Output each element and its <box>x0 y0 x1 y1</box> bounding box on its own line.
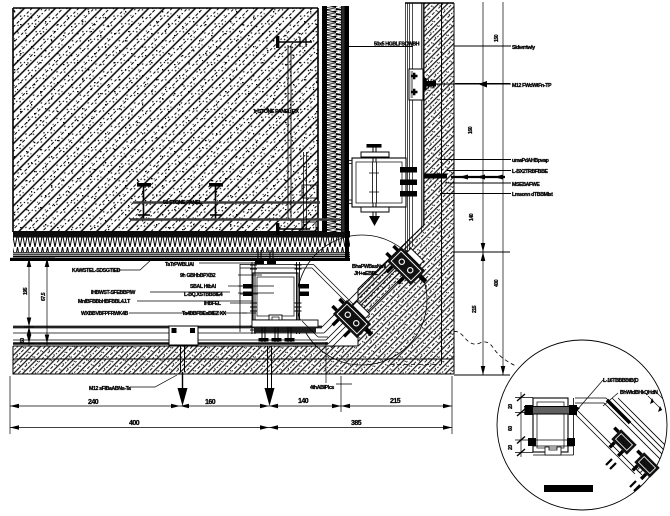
svg-text:215: 215 <box>472 305 478 313</box>
svg-text:50 STONE PANEL: 50 STONE PANEL <box>163 200 203 206</box>
svg-text:4thABlPlcs: 4thABlPlcs <box>310 385 334 391</box>
svg-text:195: 195 <box>23 287 29 295</box>
svg-text:400: 400 <box>494 279 500 287</box>
svg-text:9h GBHbBPXB2: 9h GBHbBPXB2 <box>180 273 216 279</box>
svg-text:M12 sFlBaABNs-Ta: M12 sFlBaABNs-Ta <box>89 386 131 392</box>
svg-text:t=STONE PANEL FIX: t=STONE PANEL FIX <box>254 109 300 115</box>
svg-text:KAWSTEL-SDSGTIED: KAWSTEL-SDSGTIED <box>72 268 121 274</box>
svg-text:Ta4BBFBEsBIEZ XX: Ta4BBFBEsBIEZ XX <box>182 311 227 317</box>
svg-text:400: 400 <box>129 420 140 427</box>
svg-text:67.5: 67.5 <box>41 292 47 301</box>
svg-text:385: 385 <box>351 420 362 427</box>
svg-text:Lmsonn dTBBMlst: Lmsonn dTBBMlst <box>512 192 553 198</box>
svg-text:60: 60 <box>508 426 514 431</box>
svg-text:IHBFEL: IHBFEL <box>204 301 222 307</box>
svg-text:240: 240 <box>88 399 99 406</box>
svg-text:M12 FWdWtFn-TP: M12 FWdWtFn-TP <box>512 83 552 89</box>
svg-text:L-BQ.XSTBBBIE4: L-BQ.XSTBBBIE4 <box>184 292 223 298</box>
svg-text:140: 140 <box>469 213 475 221</box>
svg-text:Sldwrrtwly: Sldwrrtwly <box>512 45 535 51</box>
svg-text:50x5 HGBLFSCWBH: 50x5 HGBLFSCWBH <box>374 42 420 48</box>
svg-text:L-16TBBBBtB(D: L-16TBBBBtB(D <box>603 378 639 384</box>
svg-text:MSEBAFWE: MSEBAFWE <box>512 182 540 188</box>
svg-text:215: 215 <box>390 398 401 405</box>
svg-text:TaTrPWBLlAl: TaTrPWBLlAl <box>165 262 195 268</box>
svg-text:50: 50 <box>20 338 26 343</box>
svg-text:150: 150 <box>494 34 500 42</box>
svg-text:JH+aEBBL: JH+aEBBL <box>354 271 379 277</box>
svg-text:L-BX2TRBFBBE: L-BX2TRBFBBE <box>512 169 548 175</box>
svg-text:BhWtdBHkQHdN: BhWtdBHkQHdN <box>620 390 658 396</box>
svg-text:20: 20 <box>508 404 514 409</box>
svg-text:20: 20 <box>508 445 514 450</box>
svg-text:SBAL HtbAl: SBAL HtbAl <box>190 284 217 290</box>
svg-text:140: 140 <box>298 398 309 405</box>
svg-text:WXBBVBFPFRWK4B: WXBBVBFPFRWK4B <box>81 311 128 317</box>
svg-text:MnIBFBBbHBFBBL4J.T: MnIBFBBbHBFBBL4J.T <box>78 299 131 305</box>
svg-text:umaPdAHBpvap: umaPdAHBpvap <box>512 158 549 164</box>
svg-text:IHBWST-SFEBBPIW: IHBWST-SFEBBPIW <box>91 290 135 296</box>
svg-text:160: 160 <box>205 399 216 406</box>
svg-text:BhaPWBasNml: BhaPWBasNml <box>352 264 387 270</box>
svg-text:160: 160 <box>468 126 474 134</box>
